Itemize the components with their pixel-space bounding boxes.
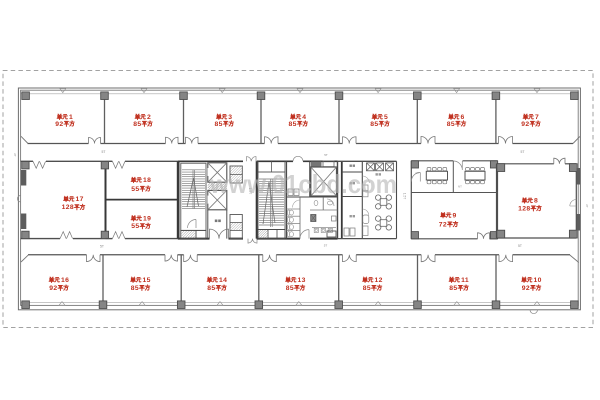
svg-text:2T: 2T bbox=[13, 153, 17, 157]
svg-text:85: 85 bbox=[370, 121, 378, 128]
svg-text:85: 85 bbox=[286, 285, 294, 292]
svg-text:92: 92 bbox=[521, 121, 529, 128]
svg-text:5T: 5T bbox=[324, 244, 328, 248]
svg-text:www.01cbd.com: www.01cbd.com bbox=[209, 169, 397, 199]
svg-text:18: 18 bbox=[143, 177, 151, 184]
svg-text:7: 7 bbox=[535, 114, 539, 121]
svg-text:2T: 2T bbox=[585, 204, 589, 208]
svg-text:85: 85 bbox=[207, 285, 215, 292]
svg-text:2: 2 bbox=[147, 114, 151, 121]
svg-text:92: 92 bbox=[522, 285, 530, 292]
svg-text:72: 72 bbox=[439, 221, 447, 228]
svg-text:55: 55 bbox=[131, 186, 139, 193]
svg-text:10: 10 bbox=[533, 277, 541, 284]
svg-text:92: 92 bbox=[49, 285, 57, 292]
svg-text:128: 128 bbox=[62, 204, 74, 211]
svg-text:12: 12 bbox=[374, 277, 382, 284]
svg-text:5T: 5T bbox=[324, 153, 328, 157]
svg-text:MT: MT bbox=[416, 171, 420, 175]
svg-text:17: 17 bbox=[75, 196, 83, 203]
svg-text:3: 3 bbox=[228, 114, 232, 121]
svg-text:85: 85 bbox=[447, 121, 455, 128]
svg-text:6: 6 bbox=[461, 114, 465, 121]
svg-text:5: 5 bbox=[384, 114, 388, 121]
svg-text:92: 92 bbox=[55, 121, 63, 128]
svg-text:16: 16 bbox=[61, 277, 69, 284]
svg-text:19: 19 bbox=[143, 216, 151, 223]
svg-text:85: 85 bbox=[131, 285, 139, 292]
svg-text:1.5T: 1.5T bbox=[403, 193, 407, 199]
svg-text:85: 85 bbox=[449, 285, 457, 292]
svg-text:9: 9 bbox=[453, 212, 457, 219]
svg-text:MT: MT bbox=[458, 185, 462, 189]
svg-text:128: 128 bbox=[518, 205, 530, 212]
svg-text:85: 85 bbox=[133, 121, 141, 128]
svg-text:55: 55 bbox=[131, 223, 139, 230]
svg-text:1: 1 bbox=[69, 114, 73, 121]
svg-text:85: 85 bbox=[289, 121, 297, 128]
svg-text:15: 15 bbox=[142, 277, 150, 284]
svg-text:4: 4 bbox=[302, 114, 306, 121]
svg-text:11: 11 bbox=[461, 277, 469, 284]
svg-text:85: 85 bbox=[363, 285, 371, 292]
svg-text:5T: 5T bbox=[102, 150, 106, 154]
svg-text:14: 14 bbox=[219, 277, 227, 284]
svg-text:5T: 5T bbox=[521, 150, 525, 154]
svg-text:5T: 5T bbox=[100, 245, 104, 249]
svg-text:13: 13 bbox=[297, 277, 305, 284]
svg-text:8: 8 bbox=[534, 198, 538, 205]
svg-text:85: 85 bbox=[215, 121, 223, 128]
svg-text:5T: 5T bbox=[518, 244, 522, 248]
